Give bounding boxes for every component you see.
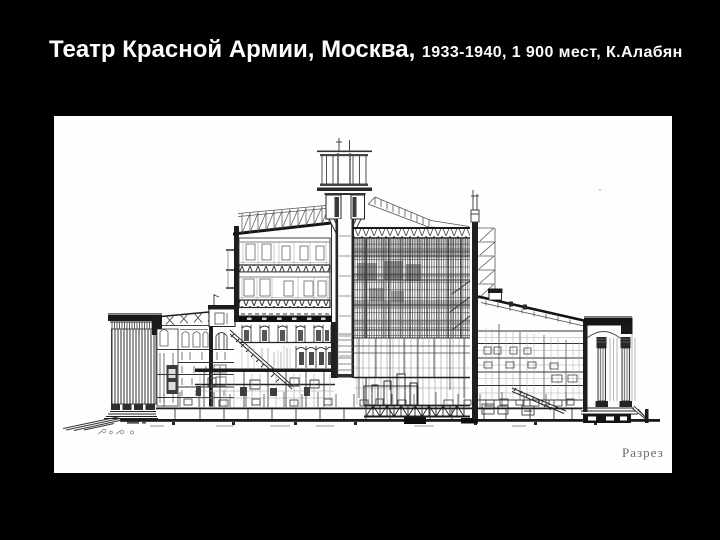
svg-text:Разрез: Разрез xyxy=(622,445,664,460)
